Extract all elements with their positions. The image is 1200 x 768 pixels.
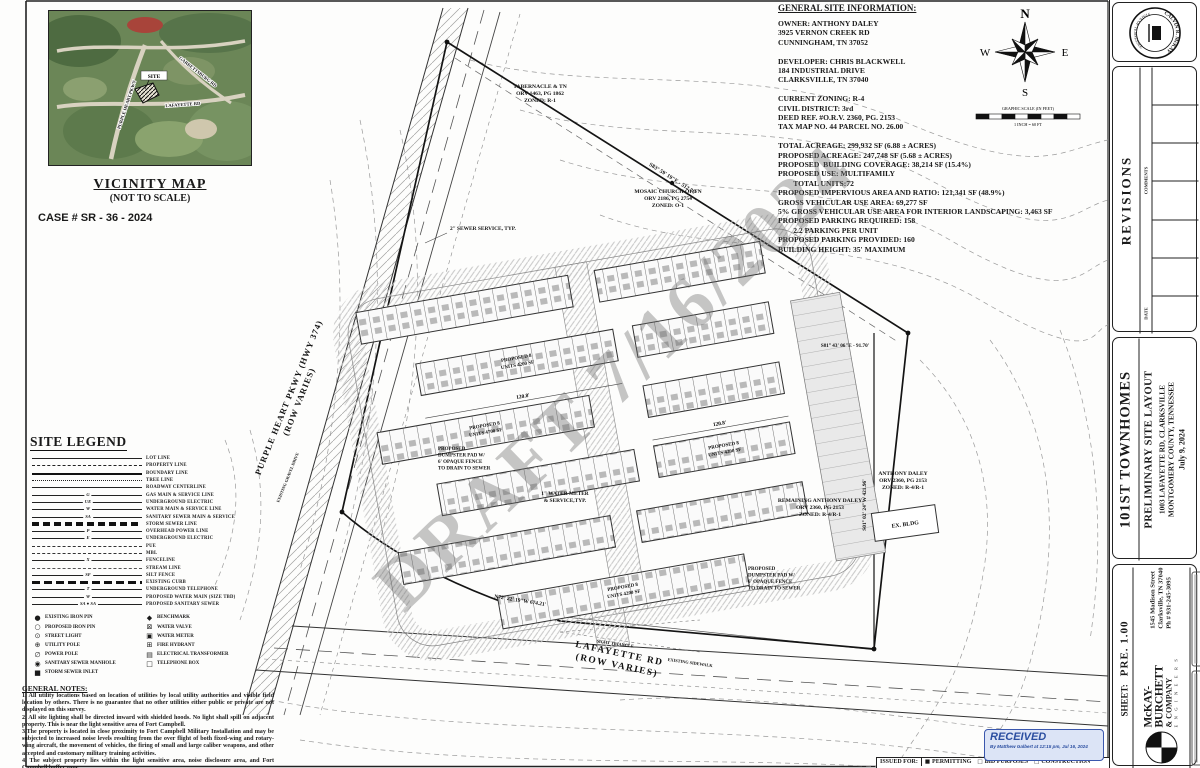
legend-symbol-icon: ○ bbox=[30, 623, 45, 631]
firm-name-2: & COMPANY bbox=[1165, 632, 1173, 727]
legend-line-item: STREAM LINE bbox=[30, 564, 260, 571]
revisions-grid bbox=[1151, 67, 1198, 333]
legend-line-item: TREE LINE bbox=[30, 477, 260, 484]
legend-line-sample: SA bbox=[30, 514, 146, 521]
legend-line-label: MBL bbox=[146, 551, 157, 556]
firm-panel: SHEET: PRE. 1.00 McKAY-BURCHETT & COMPAN… bbox=[1112, 564, 1197, 766]
legend-line-symbol: X bbox=[84, 556, 91, 563]
legend-symbol-icon: ◉ bbox=[30, 660, 45, 668]
legend-line-label: STORM SEWER LINE bbox=[146, 522, 197, 527]
legend-line-label: ROADWAY CENTERLINE bbox=[146, 485, 206, 490]
revisions-content: REVISIONS DATE COMMENTS bbox=[1113, 67, 1198, 333]
sheet-number-row: SHEET: PRE. 1.00 bbox=[1115, 567, 1133, 768]
site-info-line: TOTAL UNITS:72 bbox=[778, 179, 1113, 188]
legend-symbol-item: ⊕ UTILITY POLE bbox=[30, 641, 142, 650]
legend-line-item: T UNDERGROUND TELEPHONE bbox=[30, 586, 260, 593]
site-info-line: CLARKSVILLE, TN 37040 bbox=[778, 75, 1113, 84]
general-notes-heading: GENERAL NOTES: bbox=[22, 684, 274, 693]
legend-line-item: SF SILT FENCE bbox=[30, 572, 260, 579]
drawn-by-box bbox=[1191, 670, 1200, 765]
site-info-line: PROPOSED PARKING PROVIDED: 160 bbox=[778, 235, 1113, 244]
legend-line-label: BOUNDARY LINE bbox=[146, 471, 188, 476]
svg-text:1" WATER METER: 1" WATER METER bbox=[541, 491, 589, 497]
received-stamp-title: RECEIVED bbox=[990, 731, 1098, 743]
legend-line-symbol: W bbox=[84, 505, 92, 512]
legend-title: SITE LEGEND bbox=[30, 434, 127, 451]
general-site-information: GENERAL SITE INFORMATION: OWNER: ANTHONY… bbox=[778, 3, 1113, 254]
legend-line-sample bbox=[30, 470, 146, 477]
site-info-line: PROPOSED BUILDING COVERAGE: 38,214 SF (1… bbox=[778, 160, 1113, 169]
project-address-line1: 1003 LAFAYETTE RD, CLARKSVILLE bbox=[1157, 338, 1166, 560]
general-notes: GENERAL NOTES: 1. All utility locations … bbox=[22, 684, 274, 768]
legend-line-item: E UNDERGROUND ELECTRIC bbox=[30, 535, 260, 542]
legend-line-label: PROPERTY LINE bbox=[146, 463, 187, 468]
legend-line-sample: X bbox=[30, 557, 146, 564]
site-info-line: PROPOSED ACREAGE: 247,748 SF (5.68 ± ACR… bbox=[778, 151, 1113, 160]
firm-content: SHEET: PRE. 1.00 McKAY-BURCHETT & COMPAN… bbox=[1115, 567, 1200, 768]
legend-line-symbol: E bbox=[84, 534, 91, 541]
legend-symbol-item: ○ PROPOSED IRON PIN bbox=[30, 622, 142, 631]
legend-line-symbol: SA bbox=[83, 513, 93, 520]
svg-text:S01° 02' 24"W 421.96': S01° 02' 24"W 421.96' bbox=[861, 479, 868, 531]
legend-line-sample: E bbox=[30, 535, 146, 542]
legend-line-label: SANITARY SEWER MAIN & SERVICE bbox=[146, 515, 235, 520]
legend-line-symbol: G bbox=[84, 491, 91, 498]
firm-logo-icon bbox=[1145, 731, 1177, 763]
legend-symbol-icon: □ bbox=[142, 660, 157, 668]
svg-text:EXISTING GRAVEL DRIVE: EXISTING GRAVEL DRIVE bbox=[275, 452, 300, 503]
svg-text:REMAINING ANTHONY DALEY: REMAINING ANTHONY DALEY bbox=[778, 498, 862, 504]
svg-text:ORV 2360, PG 2153: ORV 2360, PG 2153 bbox=[796, 505, 844, 511]
drawing-date: July 9, 2024 bbox=[1177, 338, 1186, 560]
checkbox-icon: □ bbox=[977, 759, 982, 765]
legend-line-label: GAS MAIN & SERVICE LINE bbox=[146, 493, 214, 498]
sheet-number: PRE. 1.00 bbox=[1118, 620, 1130, 676]
legend-line-label: EXISTING CURB bbox=[146, 580, 186, 585]
dumpster-callout-west: PROPOSED DUMPSTER PAD W/ 6' OPAQUE FENCE… bbox=[438, 447, 491, 472]
legend-line-symbol: P bbox=[85, 527, 92, 534]
legend-line-item: PUE bbox=[30, 543, 260, 550]
issued-for-item-label: PERMITTING bbox=[932, 759, 971, 765]
legend-symbols-left: ● EXISTING IRON PIN ○ PROPOSED IRON PIN … bbox=[30, 613, 142, 677]
legend-line-label: FENCELINE bbox=[146, 558, 175, 563]
site-info-line bbox=[778, 47, 1113, 56]
legend-line-item: UE UNDERGROUND ELECTRIC bbox=[30, 499, 260, 506]
svg-text:S81° 43' 06"E - 91.70': S81° 43' 06"E - 91.70' bbox=[821, 342, 870, 349]
case-number: CASE # SR - 36 - 2024 bbox=[38, 212, 152, 224]
legend-symbol-label: BENCHMARK bbox=[157, 615, 190, 620]
firm-address-line2: Clarksville, TN 37040 bbox=[1157, 567, 1165, 628]
legend-symbol-item: ◆ BENCHMARK bbox=[142, 613, 254, 622]
firm-phone: Ph # 931-245-3095 bbox=[1165, 567, 1173, 628]
site-info-line: BUILDING HEIGHT: 35' MAXIMUM bbox=[778, 245, 1113, 254]
svg-text:ANTHONY DALEY: ANTHONY DALEY bbox=[878, 471, 927, 477]
svg-text:ZONED: R-1: ZONED: R-1 bbox=[524, 98, 556, 104]
legend-symbol-icon: ⊞ bbox=[142, 641, 157, 649]
legend-symbol-item: ∅ POWER POLE bbox=[30, 650, 142, 659]
project-title-content: 101ST TOWNHOMES PRELIMINARY SITE LAYOUT … bbox=[1113, 338, 1198, 560]
title-block-strip: CALVIN R. McKAY STATE OF TENNESSEE REVIS… bbox=[1109, 0, 1200, 768]
legend-symbol-label: STREET LIGHT bbox=[45, 634, 81, 639]
legend-symbol-item: ■ STORM SEWER INLET bbox=[30, 668, 142, 677]
general-note: 3.The property is located in close proxi… bbox=[22, 729, 274, 758]
engineer-seal-panel: CALVIN R. McKAY STATE OF TENNESSEE bbox=[1112, 2, 1197, 62]
legend-line-symbol: T bbox=[85, 585, 92, 592]
legend-line-items: LOT LINE PROPERTY LINE BOUNDARY LINE bbox=[30, 455, 260, 608]
legend-line-item: G GAS MAIN & SERVICE LINE bbox=[30, 491, 260, 498]
project-name: 101ST TOWNHOMES bbox=[1113, 338, 1139, 560]
firm-name-block: McKAY-BURCHETT & COMPANY E N G I N E E R… bbox=[1143, 632, 1179, 727]
firm-name: McKAY-BURCHETT bbox=[1143, 632, 1165, 727]
site-info-line: CIVIL DISTRICT: 3rd bbox=[778, 104, 1113, 113]
legend-symbol-item: □ TELEPHONE BOX bbox=[142, 659, 254, 668]
legend-symbol-label: STORM SEWER INLET bbox=[45, 670, 98, 675]
svg-text:EXISTING SIDEWALK: EXISTING SIDEWALK bbox=[667, 657, 713, 668]
legend-symbol-label: PROPOSED IRON PIN bbox=[45, 625, 95, 630]
legend-line-sample bbox=[30, 477, 146, 484]
legend-symbol-label: SANITARY SEWER MANHOLE bbox=[45, 661, 116, 666]
legend-symbols-right: ◆ BENCHMARK ⊠ WATER VALVE ▣ WATER METER … bbox=[142, 613, 254, 677]
svg-text:ZONED: R-4/R-1: ZONED: R-4/R-1 bbox=[882, 485, 924, 491]
received-stamp-subtitle: By Matthew Galbert at 12:15 pm, Jul 16, … bbox=[990, 744, 1098, 749]
svg-text:6' OPAQUE FENCE: 6' OPAQUE FENCE bbox=[748, 580, 793, 585]
revisions-comments-label: COMMENTS bbox=[1143, 67, 1148, 293]
legend-symbol-icon: ◆ bbox=[142, 614, 157, 622]
site-info-line: CUNNINGHAM, TN 37052 bbox=[778, 38, 1113, 47]
legend-line-symbol: UE bbox=[83, 498, 93, 505]
svg-text:DUMPSTER PAD W/: DUMPSTER PAD W/ bbox=[438, 454, 485, 459]
engineer-seal: CALVIN R. McKAY STATE OF TENNESSEE bbox=[1113, 3, 1198, 63]
legend-line-item: BOUNDARY LINE bbox=[30, 470, 260, 477]
legend-line-item: EXISTING CURB bbox=[30, 579, 260, 586]
general-note: 2. All site lighting shall be directed i… bbox=[22, 715, 274, 729]
site-info-line: DEED REF. #O.R.V. 2360, PG. 2153 bbox=[778, 113, 1113, 122]
site-info-line bbox=[778, 132, 1113, 141]
legend-symbol-label: POWER POLE bbox=[45, 652, 78, 657]
firm-name-3: E N G I N E E R S bbox=[1173, 632, 1179, 727]
legend-symbol-icon: ▤ bbox=[142, 651, 157, 659]
site-info-heading: GENERAL SITE INFORMATION: bbox=[778, 3, 1113, 13]
firm-address-line1: 1545 Madison Street bbox=[1149, 567, 1157, 628]
legend-line-label: SILT FENCE bbox=[146, 573, 175, 578]
legend-line-label: PROPOSED SANITARY SEWER bbox=[146, 602, 219, 607]
revisions-panel: REVISIONS DATE COMMENTS bbox=[1112, 66, 1197, 332]
legend-symbol-item: ▤ ELECTRICAL TRANSFORMER bbox=[142, 650, 254, 659]
legend-line-label: LOT LINE bbox=[146, 456, 170, 461]
site-legend: SITE LEGEND LOT LINE PROPERTY LINE bbox=[30, 433, 260, 678]
site-info-line: DEVELOPER: CHRIS BLACKWELL bbox=[778, 57, 1113, 66]
legend-line-item: MBL bbox=[30, 550, 260, 557]
legend-line-symbol: W bbox=[84, 593, 92, 600]
legend-symbol-item: ⊠ WATER VALVE bbox=[142, 622, 254, 631]
firm-identity: McKAY-BURCHETT & COMPANY E N G I N E E R… bbox=[1133, 567, 1189, 768]
project-title-panel: 101ST TOWNHOMES PRELIMINARY SITE LAYOUT … bbox=[1112, 337, 1197, 559]
svg-text:PROPOSED: PROPOSED bbox=[748, 567, 776, 572]
site-info-line: PROPOSED PARKING REQUIRED: 158 bbox=[778, 216, 1113, 225]
site-info-line: PROPOSED IMPERVIOUS AREA AND RATIO: 121,… bbox=[778, 188, 1113, 197]
legend-line-item: SA ● SA PROPOSED SANITARY SEWER bbox=[30, 601, 260, 608]
legend-line-item: W WATER MAIN & SERVICE LINE bbox=[30, 506, 260, 513]
svg-text:ORV 1463, PG 1862: ORV 1463, PG 1862 bbox=[516, 91, 564, 97]
svg-text:PROPOSED: PROPOSED bbox=[438, 447, 466, 452]
svg-text:ZONED: O-1: ZONED: O-1 bbox=[652, 203, 684, 209]
townhome-development: 120.8' 120.8' PROPOSED 8 UNITS 4200 SF P… bbox=[342, 219, 893, 683]
legend-line-item: ROADWAY CENTERLINE bbox=[30, 484, 260, 491]
svg-text:DUMPSTER PAD W/: DUMPSTER PAD W/ bbox=[748, 574, 795, 579]
legend-symbol-label: ELECTRICAL TRANSFORMER bbox=[157, 652, 229, 657]
site-info-line: GROSS VEHICULAR USE AREA: 69,277 SF bbox=[778, 198, 1113, 207]
legend-symbol-icon: ⊙ bbox=[30, 632, 45, 640]
firm-address: 1545 Madison Street Clarksville, TN 3704… bbox=[1149, 567, 1173, 628]
legend-line-sample: SF bbox=[30, 572, 146, 579]
svg-text:6' OPAQUE FENCE: 6' OPAQUE FENCE bbox=[438, 460, 483, 465]
legend-line-label: UNDERGROUND ELECTRIC bbox=[146, 500, 213, 505]
general-note: 4. The subject property lies within the … bbox=[22, 758, 274, 768]
legend-line-sample: SA ● SA bbox=[30, 601, 146, 608]
site-info-line bbox=[778, 85, 1113, 94]
svg-text:ORV 2186, PG 2754: ORV 2186, PG 2754 bbox=[644, 196, 692, 202]
legend-line-symbol: SF bbox=[83, 571, 93, 578]
legend-line-label: UNDERGROUND ELECTRIC bbox=[146, 536, 213, 541]
legend-symbol-label: FIRE HYDRANT bbox=[157, 643, 195, 648]
checkbox-icon: ■ bbox=[925, 759, 930, 765]
site-info-line: TOTAL ACREAGE: 299,932 SF (6.88 ± ACRES) bbox=[778, 141, 1113, 150]
svg-text:TO DRAIN TO SEWER: TO DRAIN TO SEWER bbox=[748, 587, 801, 592]
legend-line-sample bbox=[30, 455, 146, 462]
svg-text:ZONED: R-4/R-1: ZONED: R-4/R-1 bbox=[799, 512, 841, 518]
svg-text:TO DRAIN TO SEWER: TO DRAIN TO SEWER bbox=[438, 467, 491, 472]
site-info-line: PROPOSED USE: MULTIFAMILY bbox=[778, 169, 1113, 178]
site-info-line: 5% GROSS VEHICULAR USE AREA FOR INTERIOR… bbox=[778, 207, 1113, 216]
legend-symbol-icon: ▣ bbox=[142, 632, 157, 640]
legend-symbols: ● EXISTING IRON PIN ○ PROPOSED IRON PIN … bbox=[30, 613, 260, 677]
site-info-line: OWNER: ANTHONY DALEY bbox=[778, 19, 1113, 28]
revisions-column-labels: DATE COMMENTS bbox=[1139, 67, 1151, 333]
legend-symbol-icon: ■ bbox=[30, 669, 45, 677]
revisions-date-label: DATE bbox=[1143, 293, 1148, 333]
svg-text:& SERVICE,TYP.: & SERVICE,TYP. bbox=[544, 498, 587, 504]
legend-symbol-item: ◉ SANITARY SEWER MANHOLE bbox=[30, 659, 142, 668]
legend-line-item: X FENCELINE bbox=[30, 557, 260, 564]
legend-line-label: OVERHEAD POWER LINE bbox=[146, 529, 208, 534]
legend-symbol-label: WATER METER bbox=[157, 634, 194, 639]
legend-line-label: PROPOSED WATER MAIN (SIZE TBD) bbox=[146, 595, 235, 600]
issued-for-item: ■ PERMITTING bbox=[922, 758, 975, 766]
legend-line-item: P OVERHEAD POWER LINE bbox=[30, 528, 260, 535]
site-info-lines: OWNER: ANTHONY DALEY3925 VERNON CREEK RD… bbox=[778, 19, 1113, 254]
general-notes-list: 1. All utility locations based on locati… bbox=[22, 693, 274, 768]
drawing-sheet: 120.8' 120.8' PROPOSED 8 UNITS 4200 SF P… bbox=[0, 0, 1200, 768]
legend-line-sample bbox=[30, 462, 146, 469]
site-info-line: 184 INDUSTRIAL DRIVE bbox=[778, 66, 1113, 75]
copyright-box bbox=[1191, 571, 1200, 666]
svg-text:2" SEWER SERVICE, TYP.: 2" SEWER SERVICE, TYP. bbox=[450, 226, 517, 232]
issued-for-label: ISSUED FOR: bbox=[877, 758, 922, 766]
svg-text:ORV 2360, PG 2153: ORV 2360, PG 2153 bbox=[879, 478, 927, 484]
sheet-title: PRELIMINARY SITE LAYOUT bbox=[1139, 338, 1154, 560]
svg-text:PURPLE HEART PKWY (HWY 374): PURPLE HEART PKWY (HWY 374) bbox=[253, 318, 325, 476]
legend-symbol-icon: ● bbox=[30, 614, 45, 622]
svg-text:TABERNACLE & TN: TABERNACLE & TN bbox=[513, 84, 567, 90]
legend-line-label: TREE LINE bbox=[146, 478, 173, 483]
site-info-line: 2.2 PARKING PER UNIT bbox=[778, 226, 1113, 235]
legend-line-label: WATER MAIN & SERVICE LINE bbox=[146, 507, 222, 512]
legend-symbol-label: WATER VALVE bbox=[157, 625, 192, 630]
legend-line-label: UNDERGROUND TELEPHONE bbox=[146, 587, 218, 592]
legend-symbol-label: EXISTING IRON PIN bbox=[45, 615, 93, 620]
legend-line-symbol: SA ● SA bbox=[78, 600, 98, 607]
legend-symbol-label: TELEPHONE BOX bbox=[157, 661, 199, 666]
project-address-line2: MONTGOMERY COUNTY, TENNESSEE bbox=[1166, 338, 1175, 560]
revisions-title: REVISIONS bbox=[1113, 67, 1139, 333]
legend-symbol-icon: ⊠ bbox=[142, 623, 157, 631]
legend-line-item: LOT LINE bbox=[30, 455, 260, 462]
sheet-label: SHEET: bbox=[1119, 684, 1129, 716]
site-info-line: TAX MAP NO. 44 PARCEL NO. 26.00 bbox=[778, 122, 1113, 131]
legend-line-label: STREAM LINE bbox=[146, 566, 181, 571]
legend-symbol-item: ⊞ FIRE HYDRANT bbox=[142, 641, 254, 650]
legend-line-item: STORM SEWER LINE bbox=[30, 521, 260, 528]
legend-symbol-icon: ∅ bbox=[30, 651, 45, 659]
site-info-line: CURRENT ZONING: R-4 bbox=[778, 94, 1113, 103]
legend-symbol-icon: ⊕ bbox=[30, 641, 45, 649]
legend-symbol-item: ▣ WATER METER bbox=[142, 632, 254, 641]
legend-line-item: W PROPOSED WATER MAIN (SIZE TBD) bbox=[30, 594, 260, 601]
general-note: 1. All utility locations based on locati… bbox=[22, 693, 274, 715]
legend-symbol-label: UTILITY POLE bbox=[45, 643, 80, 648]
legend-line-item: SA SANITARY SEWER MAIN & SERVICE bbox=[30, 513, 260, 520]
fine-print-row bbox=[1189, 567, 1200, 768]
existing-building: EX. BLDG bbox=[871, 505, 938, 542]
legend-line-label: PUE bbox=[146, 544, 156, 549]
legend-line-item: PROPERTY LINE bbox=[30, 462, 260, 469]
received-stamp: RECEIVED By Matthew Galbert at 12:15 pm,… bbox=[984, 729, 1104, 761]
legend-symbol-item: ● EXISTING IRON PIN bbox=[30, 613, 142, 622]
legend-line-sample bbox=[30, 543, 146, 550]
legend-symbol-item: ⊙ STREET LIGHT bbox=[30, 632, 142, 641]
site-info-line: 3925 VERNON CREEK RD bbox=[778, 28, 1113, 37]
